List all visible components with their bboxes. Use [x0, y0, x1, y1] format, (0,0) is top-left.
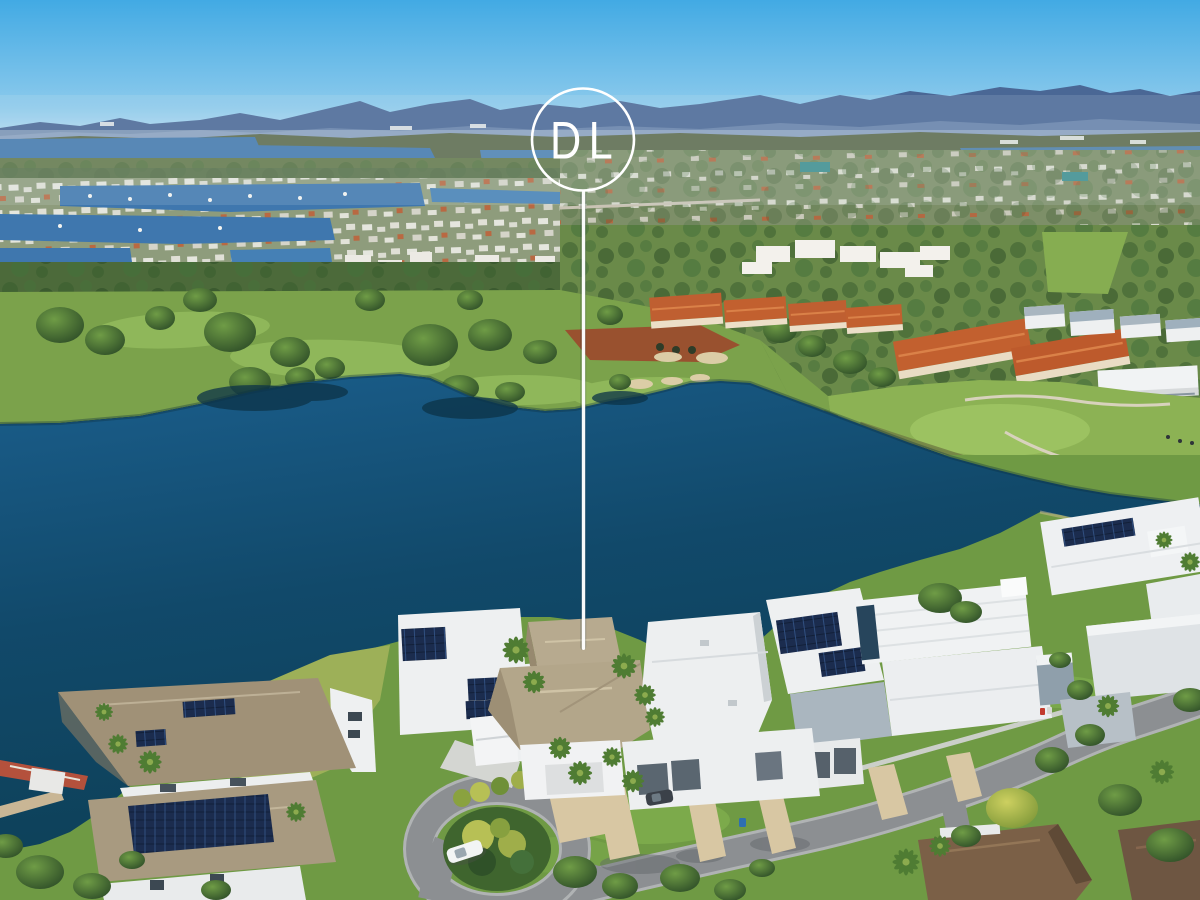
white-bin: [1047, 707, 1052, 714]
logo-text: DL: [550, 112, 620, 171]
yellow-tree: [986, 788, 1038, 828]
pointer-line: [582, 191, 585, 650]
aerial-photo-stage: DL: [0, 0, 1200, 900]
blue-bin: [739, 818, 746, 827]
aerial-photo: DL: [0, 0, 1200, 900]
red-bin: [1040, 708, 1045, 715]
